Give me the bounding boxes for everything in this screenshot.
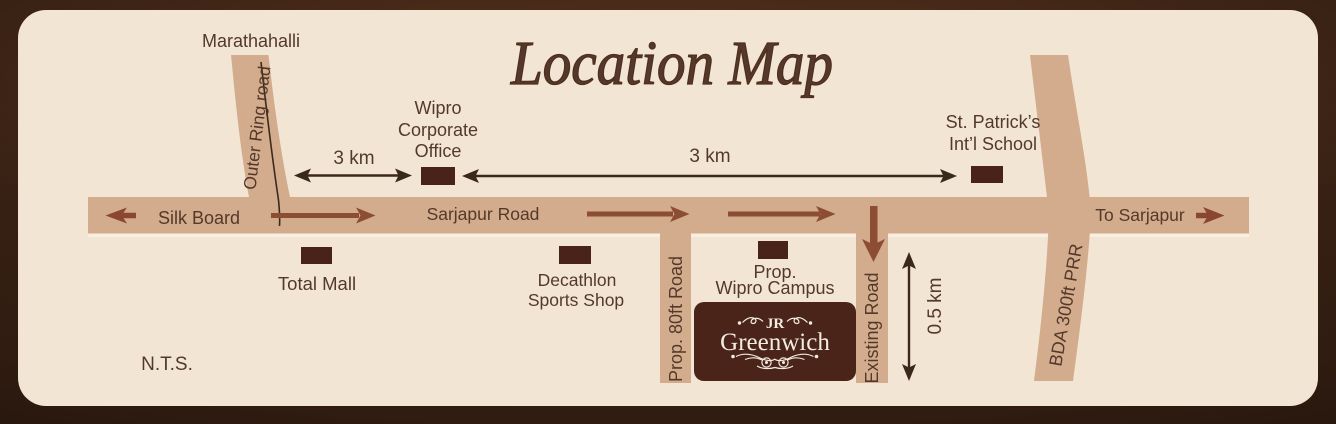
- svg-text:Office: Office: [415, 141, 462, 161]
- svg-text:Corporate: Corporate: [398, 120, 478, 140]
- svg-text:N.T.S.: N.T.S.: [141, 354, 193, 375]
- svg-text:Prop. 80ft Road: Prop. 80ft Road: [666, 256, 686, 382]
- svg-text:Location Map: Location Map: [510, 30, 833, 98]
- svg-text:Wipro Campus: Wipro Campus: [715, 278, 834, 298]
- svg-text:To Sarjapur: To Sarjapur: [1095, 205, 1185, 225]
- svg-text:3 km: 3 km: [333, 148, 374, 169]
- svg-text:St. Patrick’s: St. Patrick’s: [946, 112, 1041, 132]
- svg-text:Total Mall: Total Mall: [278, 273, 356, 294]
- svg-text:Silk Board: Silk Board: [158, 208, 240, 228]
- svg-text:Sports Shop: Sports Shop: [528, 290, 624, 310]
- svg-text:Sarjapur Road: Sarjapur Road: [427, 204, 540, 224]
- svg-text:Marathahalli: Marathahalli: [202, 31, 300, 51]
- svg-text:Wipro: Wipro: [414, 98, 461, 118]
- svg-text:Decathlon: Decathlon: [538, 270, 617, 290]
- svg-text:Existing Road: Existing Road: [862, 272, 882, 383]
- svg-text:0.5 km: 0.5 km: [925, 277, 946, 334]
- svg-text:Greenwich: Greenwich: [720, 329, 830, 356]
- svg-text:Int’l School: Int’l School: [949, 134, 1037, 154]
- svg-text:3 km: 3 km: [689, 146, 730, 167]
